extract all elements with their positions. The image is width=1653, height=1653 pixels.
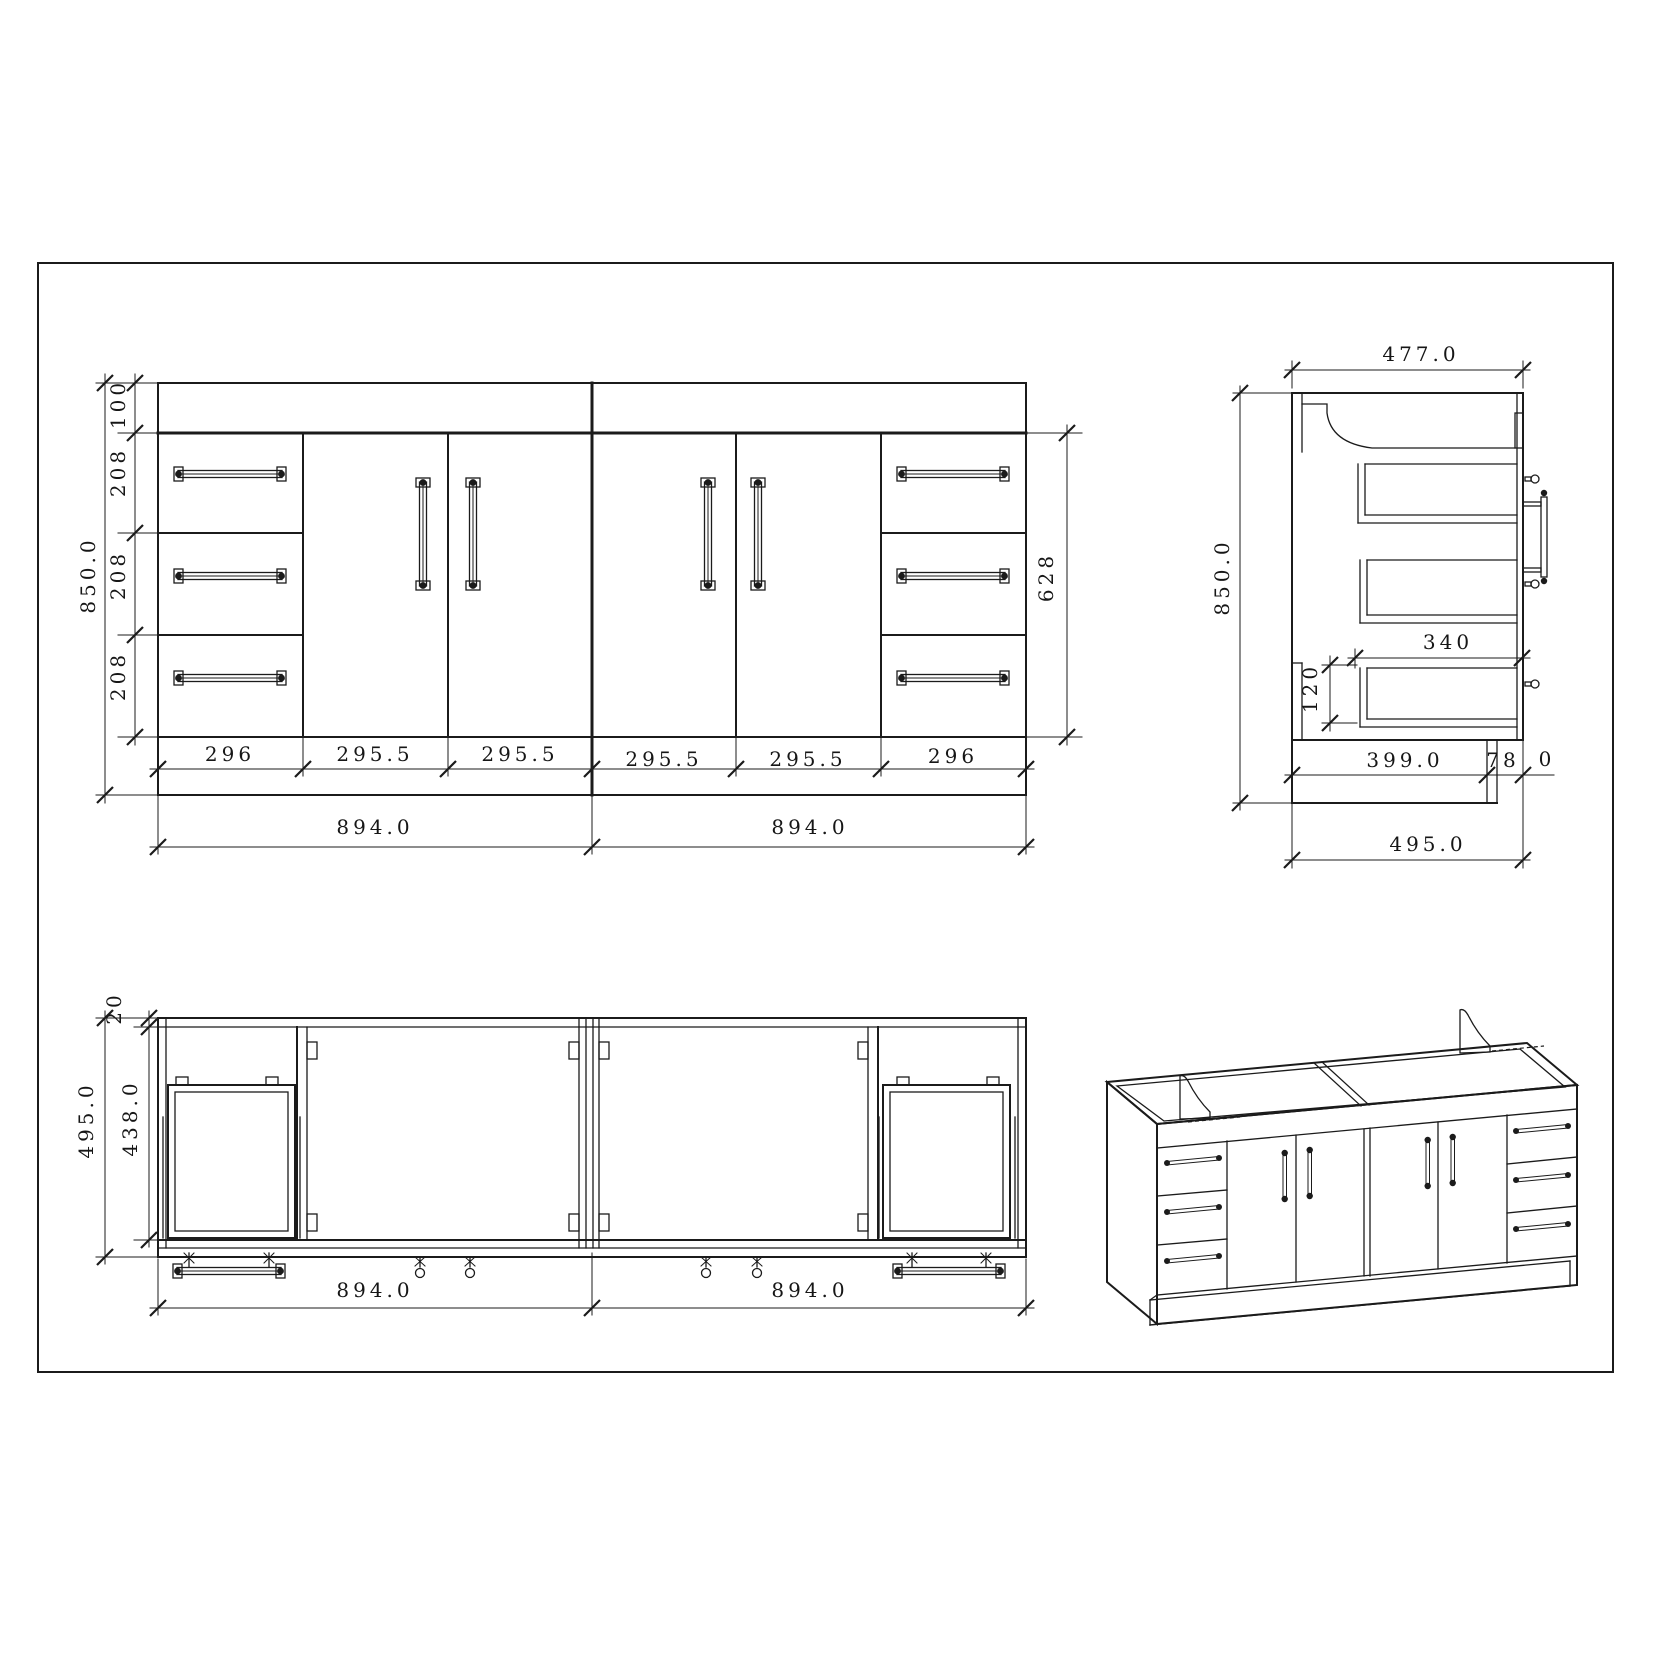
plan-drawer-boxes [163,1077,1015,1238]
door-handle-iso [1425,1137,1431,1189]
dim-label-width: 295.5 [625,747,702,771]
drawer-handle-iso [1164,1155,1222,1166]
dim-label-kick-length: 399.0 [1366,748,1443,772]
handle-post [981,1253,991,1267]
dim-label-width: 295.5 [481,742,558,766]
dim-label-drawer-height: 208 [106,550,130,600]
dim-label-width: 295.5 [336,742,413,766]
door-handle [701,478,715,590]
drawer-handle [897,569,1009,583]
drawer-handle-iso [1513,1172,1571,1183]
dimension-ticks [97,375,1075,855]
dim-label-door-stack: 628 [1034,552,1058,602]
side-dimensions: 477.0 850.0 340 120 399.0 78 0 495.0 [1210,342,1555,868]
dim-label-overall-depth: 495.0 [74,1081,98,1158]
door-handle-side [1541,497,1547,577]
drawing-sheet: 850.0 100 208 208 208 628 296 295.5 295.… [0,0,1653,1653]
front-dimensions: 850.0 100 208 208 208 628 296 295.5 295.… [76,374,1082,855]
door-handle-iso [1282,1150,1288,1202]
side-handles [1523,475,1547,688]
dim-label-top-rail: 100 [106,379,130,429]
dim-label-internal-depth: 438.0 [118,1079,142,1156]
handle-post [184,1253,194,1267]
drawer-handle [174,569,286,583]
drawer-handle-side [1525,580,1539,588]
drawer-handle-plan [173,1264,285,1278]
drawer-handle [897,467,1009,481]
plan-view: 20 438.0 495.0 894.0 894.0 [74,991,1034,1316]
drawer-handle-side [1525,475,1539,483]
front-carcass-outline [158,383,1026,795]
plan-hinges [307,1042,868,1231]
drawer-handle-plan [893,1264,1005,1278]
dim-label-back-gap: 20 [102,991,126,1024]
door-knob-plan [465,1257,475,1278]
front-elevation-view: 850.0 100 208 208 208 628 296 295.5 295.… [76,374,1082,855]
dim-label-module-width: 894.0 [771,1278,848,1302]
dim-label-module-width: 894.0 [336,815,413,839]
handle-post [907,1253,917,1267]
dim-label-drawer-height: 208 [106,651,130,701]
dim-label-drawer-height: 208 [106,447,130,497]
dim-label-overall-height: 850.0 [76,536,100,613]
drawer-handle-iso [1513,1123,1571,1134]
iso-front-panels [1157,1109,1577,1295]
dim-label-kick-setback-dec: 0 [1539,747,1556,771]
dim-label-overall-depth: 495.0 [1389,832,1466,856]
door-handle-iso [1450,1134,1456,1186]
side-drawer-profiles [1358,464,1517,727]
drawer-handle-iso [1164,1253,1222,1264]
dim-label-width: 296 [928,744,978,768]
dim-label-width: 295.5 [769,747,846,771]
drawer-handle [174,467,286,481]
drawer-handle-iso [1164,1204,1222,1215]
dim-label-width: 296 [205,742,255,766]
door-handle [416,478,430,590]
drawer-handle-side [1525,680,1539,688]
door-handle [466,478,480,590]
cabinet-technical-drawing: 850.0 100 208 208 208 628 296 295.5 295.… [0,0,1653,1653]
side-carcass-outline [1292,393,1523,803]
dim-label-drawer-depth: 340 [1423,630,1473,654]
dim-label-module-width: 894.0 [771,815,848,839]
dim-label-carcass-depth: 477.0 [1382,342,1459,366]
iso-handles [1164,1123,1571,1264]
dim-label-module-width: 894.0 [336,1278,413,1302]
door-handle-iso [1307,1147,1313,1199]
handle-post [264,1253,274,1267]
door-knob-plan [701,1257,711,1278]
dim-label-kick-setback: 78 [1486,748,1519,772]
drawer-handle [897,671,1009,685]
isometric-view [1107,1010,1577,1325]
door-handle [751,478,765,590]
dim-label-overall-height: 850.0 [1210,538,1234,615]
iso-kick [1150,1261,1570,1325]
dim-label-drawer-gap: 120 [1298,663,1322,713]
door-knob-plan [752,1257,762,1278]
drawer-handle [174,671,286,685]
side-section-view: 477.0 850.0 340 120 399.0 78 0 495.0 [1210,342,1555,868]
door-knob-plan [415,1257,425,1278]
drawer-handle-iso [1513,1221,1571,1232]
